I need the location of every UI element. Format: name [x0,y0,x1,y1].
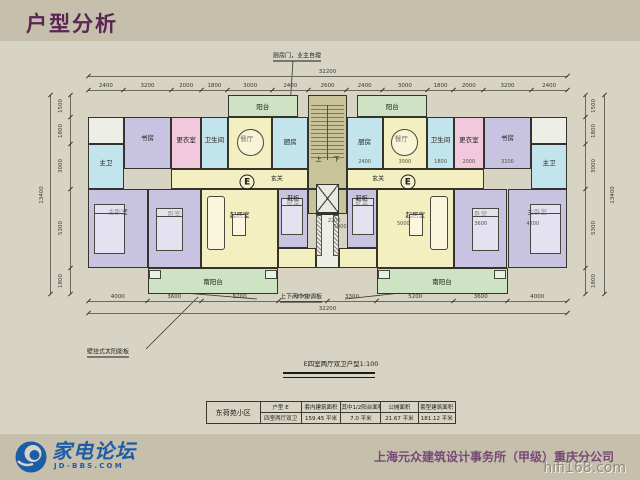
slide: 户型分析 阳台阳台书房书房更衣室更衣室卫生间卫生间餐厅餐厅厨房厨房主卫主卫起居室… [0,0,640,480]
project-name-cell: 东荷苑小区 [207,402,261,424]
table-value-cell: 7.0 平米 [341,413,381,424]
table-header-row: 东荷苑小区 户型 E套内建筑面积其中1/2阳台面积公摊面积套型建筑面积 [207,402,456,413]
logo-text: 家电论坛 [52,440,136,462]
page-title: 户型分析 [26,8,118,38]
forum-logo: 家电论坛 JD-BBS.COM [14,440,136,474]
area-table: 东荷苑小区 户型 E套内建筑面积其中1/2阳台面积公摊面积套型建筑面积 四室两厅… [206,401,456,424]
table-header-cell: 其中1/2阳台面积 [341,402,381,413]
caption-underline [283,372,375,374]
table-header-cell: 户型 E [260,402,301,413]
table-value-cell: 181.12 平米 [418,413,455,424]
logo-domain: JD-BBS.COM [54,462,136,470]
table-header-cell: 公摊面积 [381,402,418,413]
table-value-cell: 21.67 平米 [381,413,418,424]
table-value-cell: 159.45 平米 [301,413,341,424]
table-value-cell: 四室两厅双卫 [260,413,301,424]
drawing-sheet [0,41,640,434]
plan-caption: E四室两厅双卫户型1:100 [304,358,379,368]
table-header-cell: 套型建筑面积 [418,402,455,413]
caption-underline-thin [283,377,375,378]
swirl-logo-icon [14,440,48,474]
watermark-text: hifi168.com [543,460,626,476]
table-header-cell: 套内建筑面积 [301,402,341,413]
